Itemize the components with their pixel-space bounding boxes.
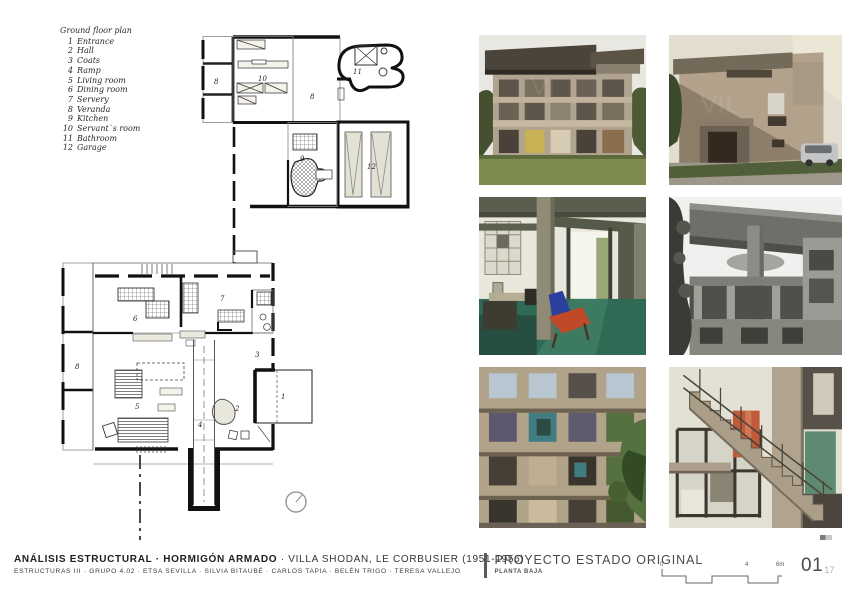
sheet-title-block: ANÁLISIS ESTRUCTURAL · HORMIGÓN ARMADO ·…	[14, 554, 524, 575]
photo-facade-front: VI	[479, 35, 646, 185]
svg-text:VI: VI	[531, 73, 555, 101]
scale-bar: 0 4 6m	[652, 556, 812, 586]
room-label-servery: 7	[220, 295, 225, 303]
photo-facade-grid	[479, 367, 646, 528]
scale-tick-4: 4	[745, 562, 749, 568]
main-house-plan	[63, 251, 312, 540]
north-symbol	[286, 492, 306, 512]
room-label-bathroom: 11	[353, 68, 362, 76]
room-label-ramp: 4	[197, 421, 202, 429]
scale-tick-6m: 6m	[776, 562, 784, 568]
ground-floor-plan-drawing: 8 10 11 8 9 12 6 7 8 5 3 2 1 4	[0, 0, 470, 545]
room-label-dining: 6	[133, 315, 138, 323]
sheet-title: ANÁLISIS ESTRUCTURAL · HORMIGÓN ARMADO ·…	[14, 554, 524, 565]
svg-text:VIL: VIL	[700, 89, 740, 118]
photo-interior-living	[479, 197, 646, 355]
sheet-credits: ESTRUCTURAS III · GRUPO 4.02 · ETSA SEVI…	[14, 568, 524, 575]
room-label-kitchen: 9	[300, 155, 305, 163]
room-label-hall: 2	[234, 405, 240, 413]
page-number: 0117	[801, 555, 835, 577]
room-label-veranda-top: 8	[214, 78, 219, 86]
photo-staircase	[669, 367, 842, 528]
divider-bar	[484, 553, 487, 578]
photo-facade-side: VIL	[669, 35, 842, 185]
scale-tick-0: 0	[660, 562, 664, 568]
room-label-veranda-mid: 8	[310, 93, 315, 101]
room-label-living: 5	[135, 403, 140, 411]
bathroom-curved-wall	[339, 45, 403, 91]
room-label-servants: 10	[258, 75, 267, 83]
room-label-entrance: 1	[281, 393, 285, 401]
photo-roof-underside	[669, 197, 842, 355]
presentation-sheet: Ground floor plan 1Entrance 2Hall 3Coats…	[0, 0, 848, 600]
room-label-coats: 3	[255, 351, 260, 359]
page-number-current: 01	[801, 555, 823, 576]
room-label-veranda-main: 8	[75, 363, 80, 371]
page-number-total: 17	[824, 565, 835, 576]
ramp	[188, 340, 220, 511]
sheet-title-bold: ANÁLISIS ESTRUCTURAL · HORMIGÓN ARMADO	[14, 554, 277, 565]
corner-mark	[820, 535, 832, 540]
room-label-garage: 12	[367, 163, 376, 171]
